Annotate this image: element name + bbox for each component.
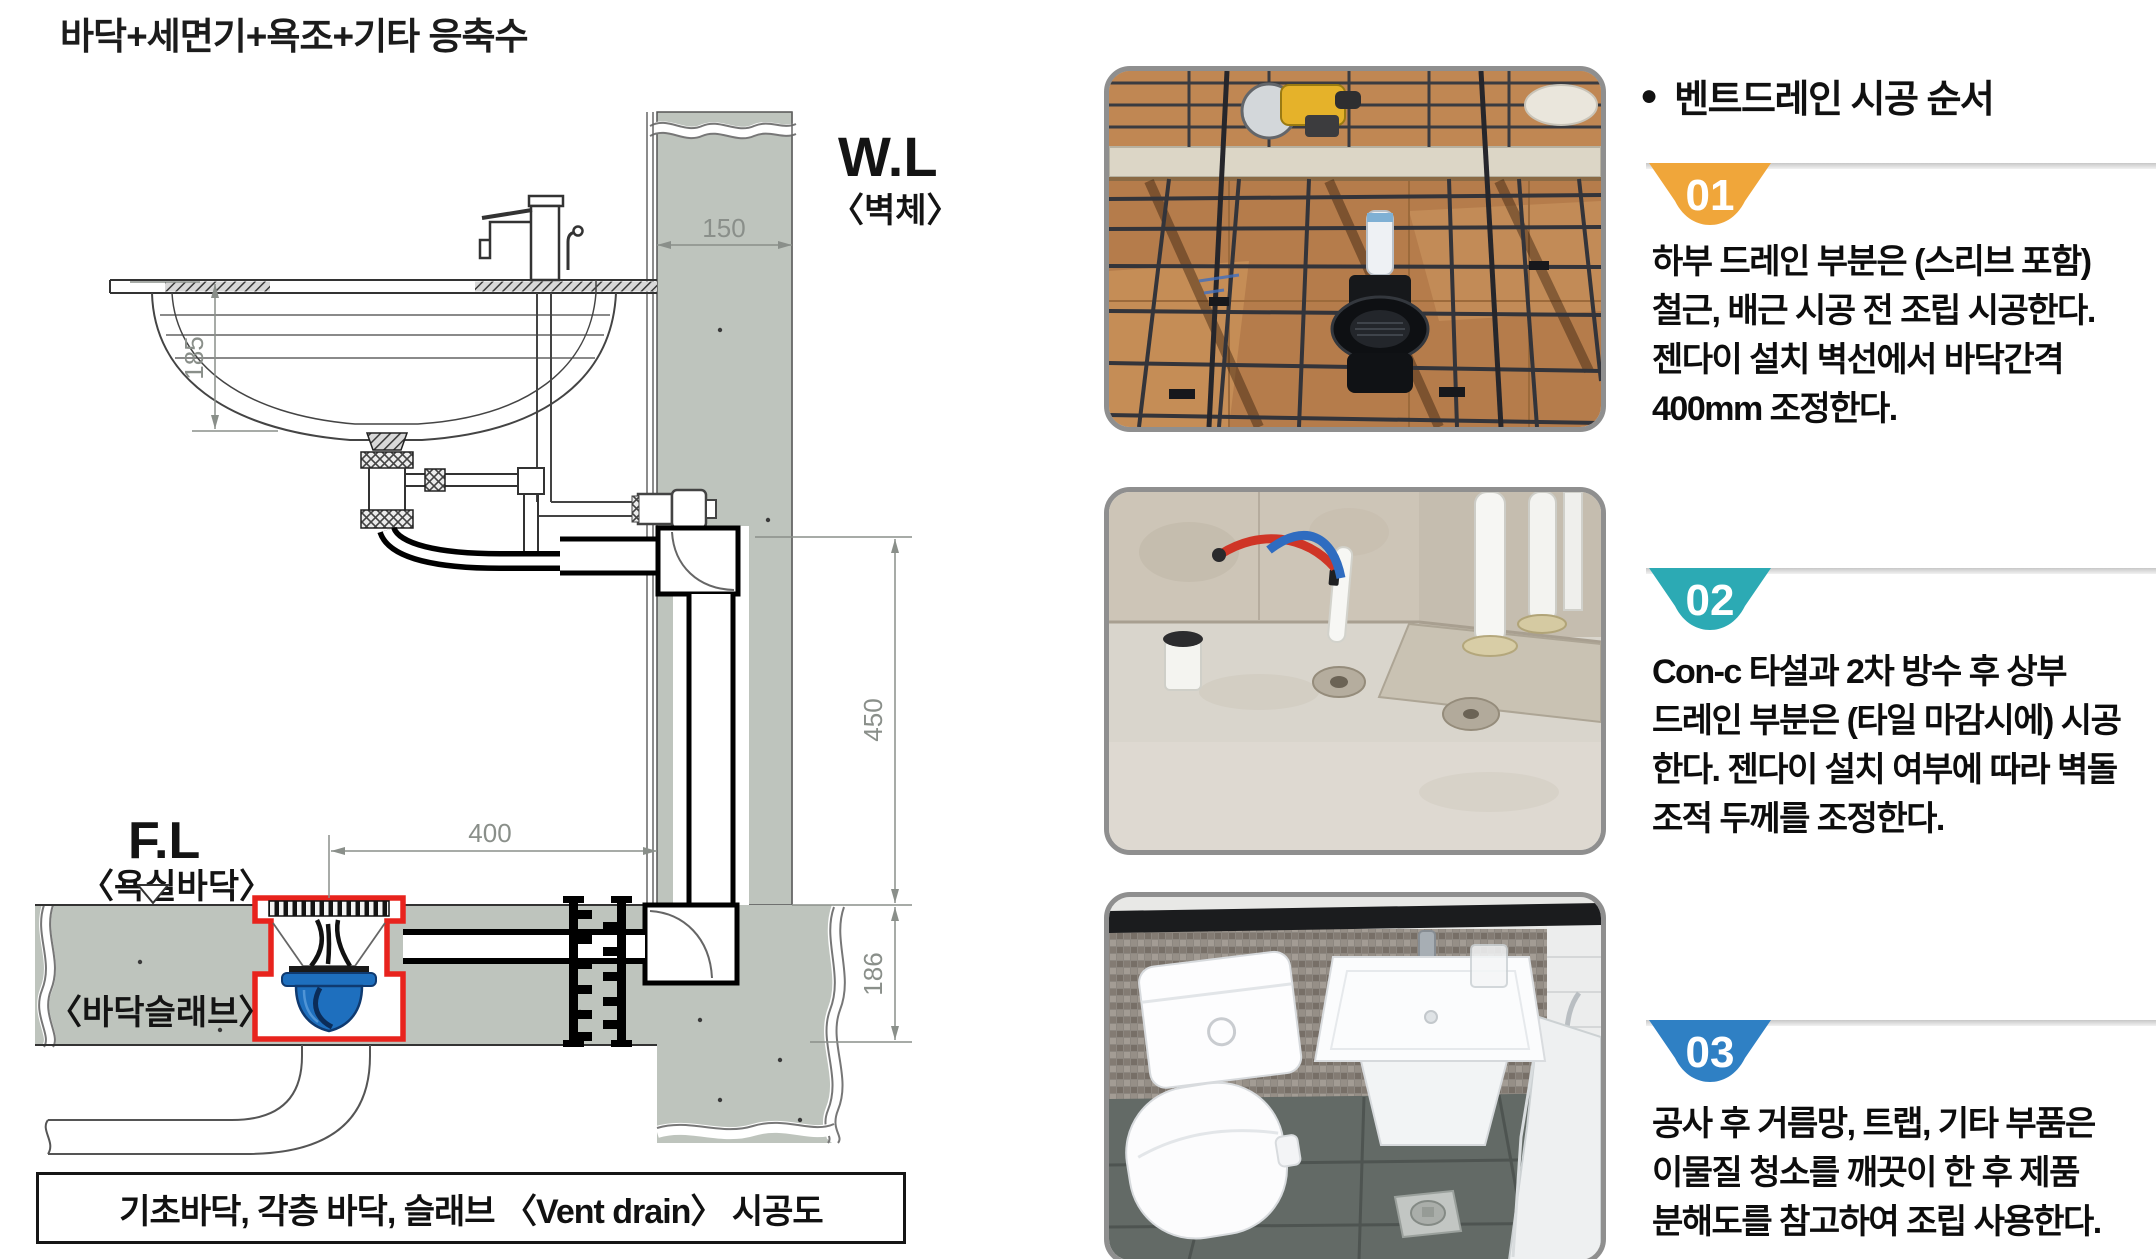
step3-text: 공사 후 거름망, 트랩, 기타 부품은 이물질 청소를 깨끗이 한 후 제품 … xyxy=(1652,1100,2154,1247)
label-floor-slab: 〈바닥슬래브〉 xyxy=(48,994,272,1032)
step2-concrete-floor-photo xyxy=(1104,487,1606,855)
page: 바닥+세면기+욕조+기타 응축수 xyxy=(0,0,2156,1259)
steps-heading-text: 벤트드레인 시공 순서 xyxy=(1674,68,1993,123)
step2-text: Con-c 타설과 2차 방수 후 상부 드레인 부분은 (타일 마감시에) 시… xyxy=(1652,648,2154,844)
label-floor-level: F.L xyxy=(128,812,200,870)
label-wall-level: W.L xyxy=(838,125,938,188)
step2-badge: 02 xyxy=(1648,568,1772,630)
page-title: 바닥+세면기+욕조+기타 응축수 xyxy=(60,6,528,60)
diagram-caption: 기초바닥, 각층 바닥, 슬래브 〈Vent drain〉 시공도 xyxy=(119,1184,822,1233)
label-wall-level-sub: 〈벽체〉 xyxy=(830,192,960,230)
dim-riser-height: 450 xyxy=(858,698,888,741)
washbasin-section xyxy=(152,280,616,440)
dim-slab-thickness: 186 xyxy=(858,952,888,995)
dim-basin-depth: 185 xyxy=(179,336,209,379)
step1-rebar-formwork-photo xyxy=(1104,66,1606,432)
label-floor-level-sub: 〈욕실바닥〉 xyxy=(80,868,273,906)
dim-drain-to-wall: 400 xyxy=(468,818,511,848)
faucet xyxy=(480,196,583,280)
steps-heading: ● 벤트드레인 시공 순서 xyxy=(1640,68,1993,123)
diagram-caption-box: 기초바닥, 각층 바닥, 슬래브 〈Vent drain〉 시공도 xyxy=(36,1172,906,1244)
bullet-icon: ● xyxy=(1640,81,1658,111)
step1-badge: 01 xyxy=(1648,163,1772,225)
step2-number: 02 xyxy=(1686,576,1735,625)
step1-number: 01 xyxy=(1686,171,1735,220)
below-slab-piping xyxy=(46,1045,370,1154)
vent-drain-section-diagram: 150 185 450 186 400 W.L 〈벽체〉 F.L 〈욕실바닥〉 … xyxy=(20,90,960,1165)
step1-text: 하부 드레인 부분은 (스리브 포함) 철근, 배근 시공 전 조립 시공한다.… xyxy=(1652,238,2154,434)
step3-finished-bathroom-photo xyxy=(1104,892,1606,1259)
step3-badge: 03 xyxy=(1648,1020,1772,1082)
floor-drain-unit xyxy=(255,898,403,1039)
step3-number: 03 xyxy=(1686,1028,1735,1077)
dim-wall-thickness: 150 xyxy=(702,213,745,243)
